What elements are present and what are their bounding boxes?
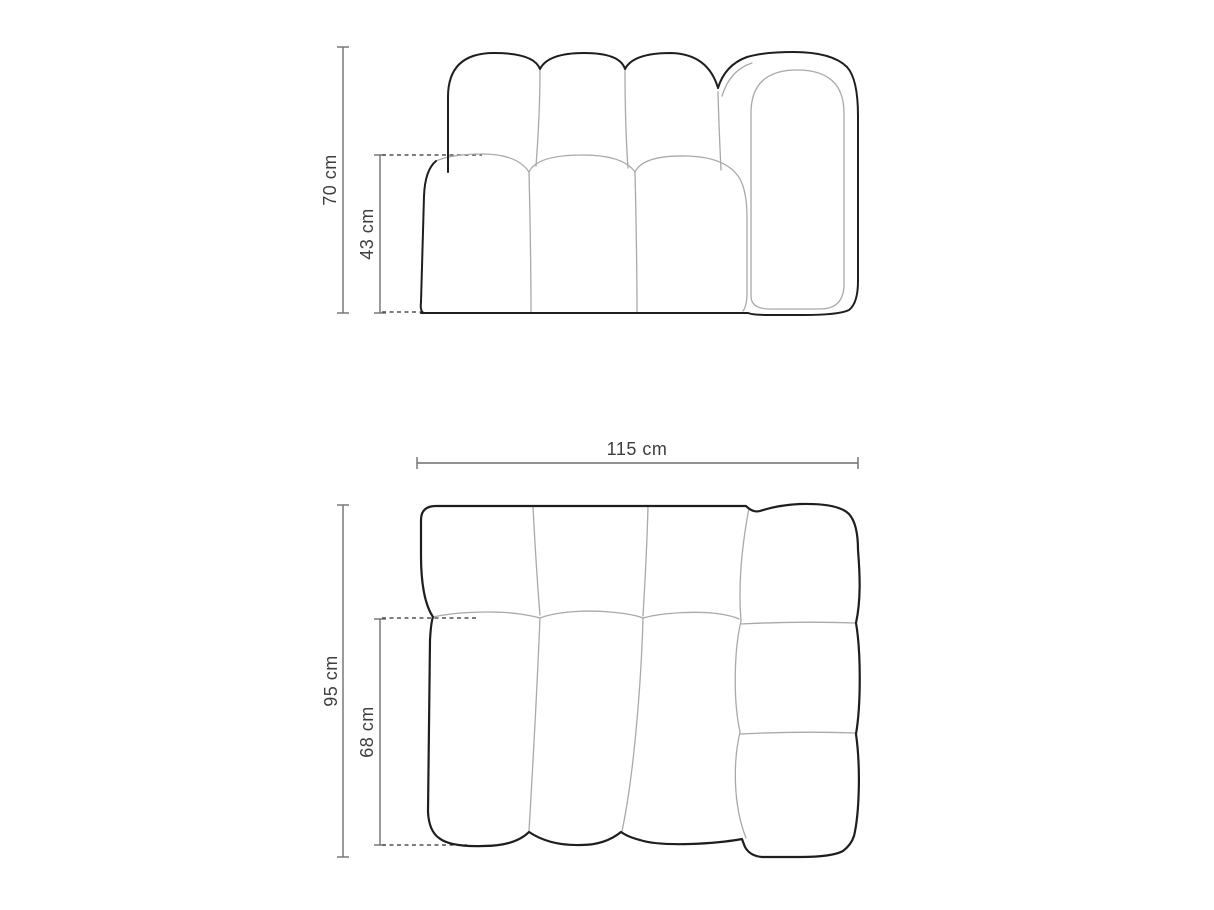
front-seat-height-label: 43 cm [357,208,377,260]
front-seat-1-left-edge [421,161,436,313]
top-armrest-divider-2 [740,732,856,734]
front-seat-divider-2 [635,172,637,313]
sofa-dimension-diagram: 70 cm 43 cm [0,0,1214,910]
top-width-label: 115 cm [607,439,668,459]
front-view: 70 cm 43 cm [320,47,858,315]
top-back-divider-1 [533,507,540,615]
front-armrest-inner-panel [751,70,844,309]
front-sofa-inner-lines [436,63,844,313]
front-extension-lines [382,155,482,312]
front-seat-3-right-edge [740,179,747,311]
top-seat-divider-2 [622,618,643,831]
top-seat-divider-1 [529,618,540,831]
top-back-divider-2 [643,507,648,616]
front-height-label: 70 cm [320,154,340,206]
top-depth-label: 95 cm [321,655,341,707]
top-view: 115 cm 95 cm 68 cm [321,439,860,857]
front-sofa-outline [421,52,858,315]
top-backrest-boundary [433,611,739,619]
front-seat-3-top [635,156,740,179]
front-seat-divider-1 [529,172,531,313]
front-armrest-outline [718,52,858,315]
front-armrest-back-edge-line [718,92,721,170]
front-seat-2-top [529,155,635,172]
front-seat-1-top [436,154,529,172]
top-armrest-divider-1 [741,622,856,624]
top-armrest-boundary [735,508,749,838]
front-back-divider-2 [625,69,628,168]
diagram-svg: 70 cm 43 cm [0,0,1214,910]
top-seat-depth-label: 68 cm [357,706,377,758]
top-sofa-inner-lines [433,507,856,838]
front-back-divider-1 [536,69,540,166]
front-armrest-edge-line [722,63,752,96]
